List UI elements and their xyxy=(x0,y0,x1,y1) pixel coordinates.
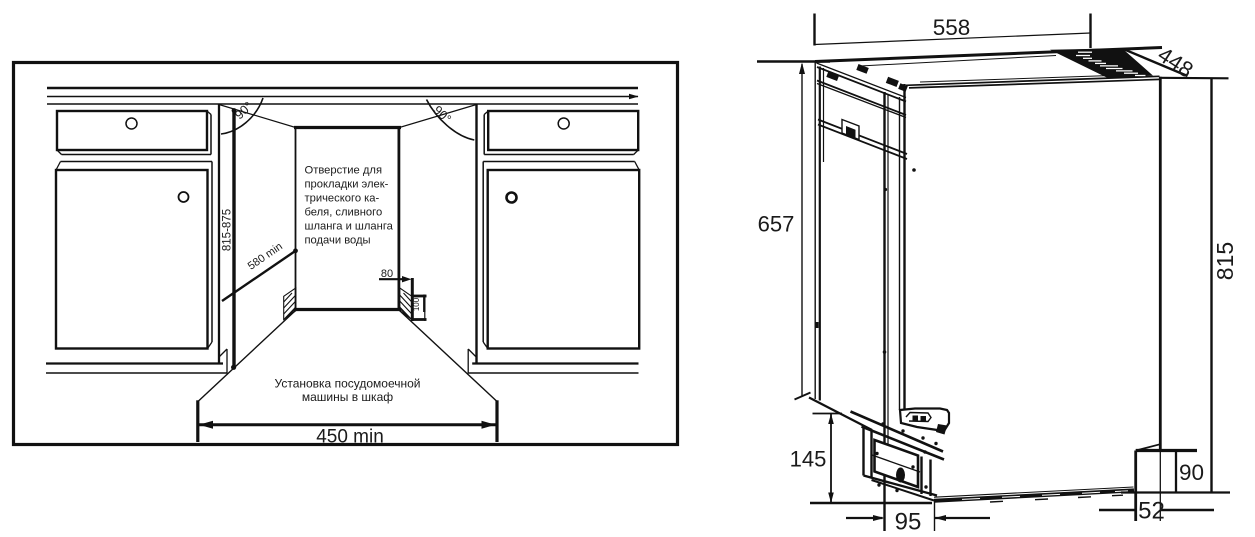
svg-text:145: 145 xyxy=(790,447,827,472)
svg-text:815-875: 815-875 xyxy=(222,209,234,251)
svg-text:52: 52 xyxy=(1138,498,1165,525)
svg-text:шланга и шланга: шланга и шланга xyxy=(305,221,394,233)
svg-text:Отверстие для: Отверстие для xyxy=(305,165,383,177)
svg-text:558: 558 xyxy=(933,15,971,40)
svg-text:машины в шкаф: машины в шкаф xyxy=(302,390,393,404)
svg-text:657: 657 xyxy=(758,212,795,237)
svg-text:815: 815 xyxy=(1212,242,1238,280)
svg-text:90: 90 xyxy=(1179,460,1204,485)
svg-text:беля, сливного: беля, сливного xyxy=(305,207,383,219)
svg-text:прокладки элек-: прокладки элек- xyxy=(305,179,389,191)
svg-text:подачи воды: подачи воды xyxy=(305,235,371,247)
svg-text:450 min: 450 min xyxy=(316,427,384,448)
svg-text:80: 80 xyxy=(381,268,393,280)
svg-text:трического ка-: трического ка- xyxy=(305,193,380,205)
svg-text:Установка посудомоечной: Установка посудомоечной xyxy=(275,377,421,391)
svg-text:100: 100 xyxy=(412,297,421,311)
svg-text:95: 95 xyxy=(895,509,922,536)
